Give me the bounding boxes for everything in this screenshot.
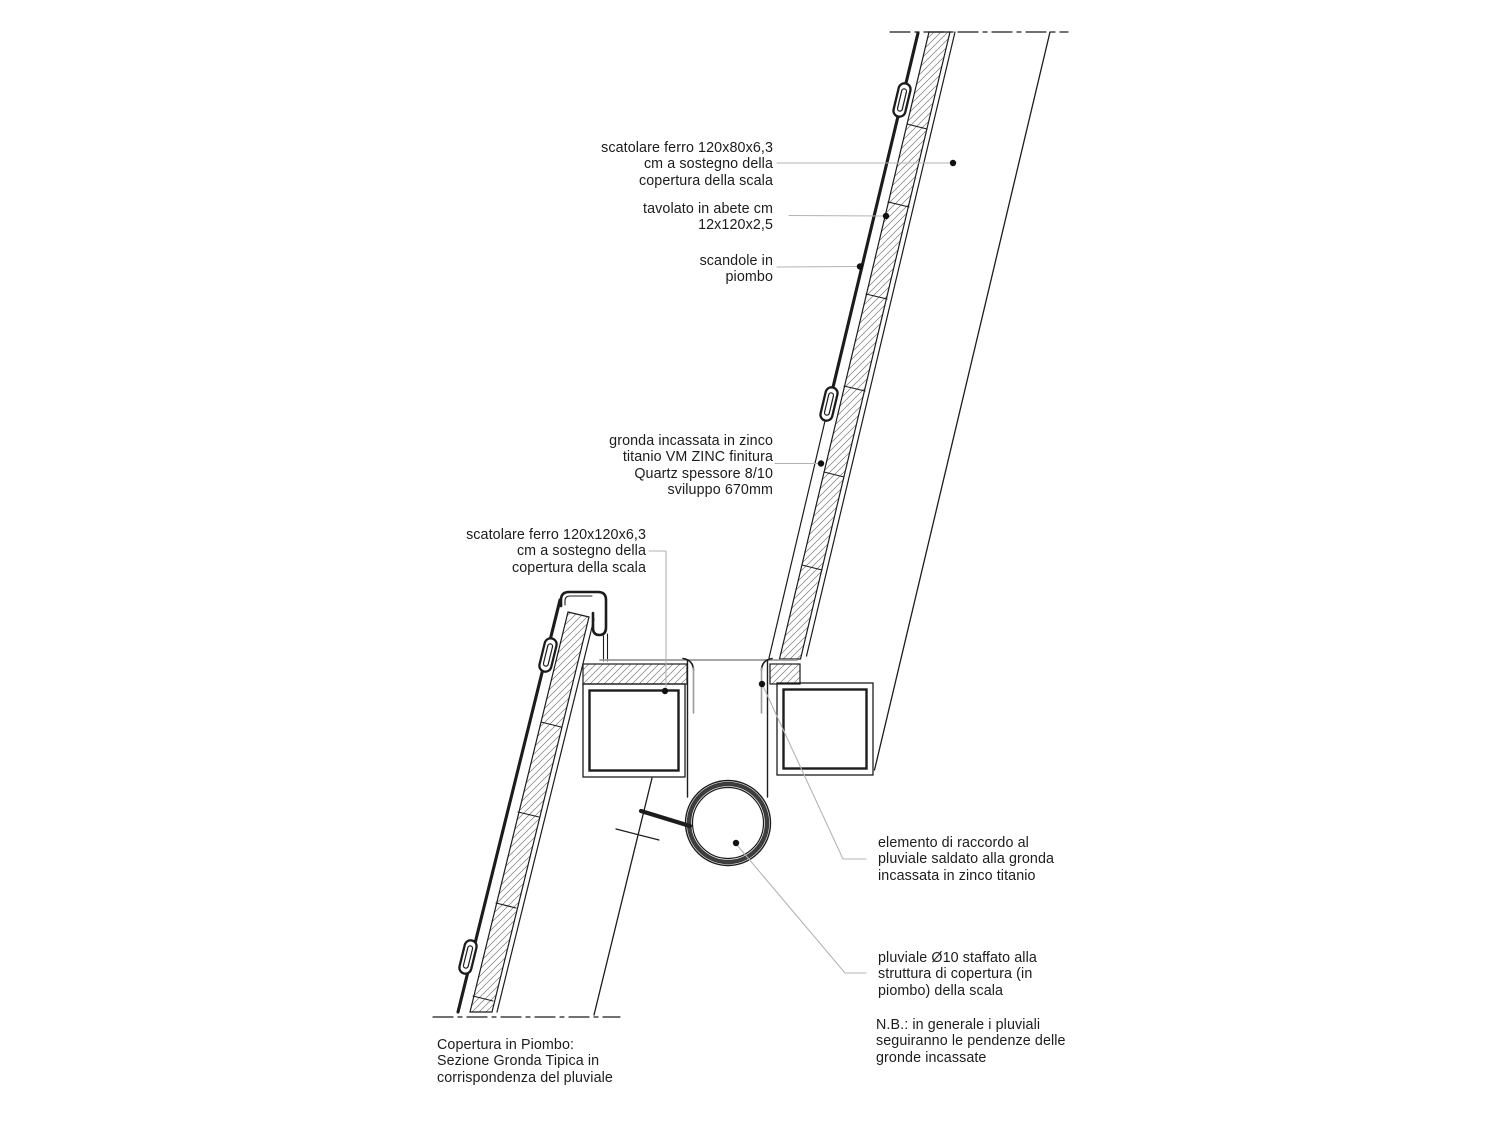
label-gutter: gronda incassata in zinco titanio VM ZIN…: [609, 433, 773, 499]
leader-downpipe: [737, 845, 866, 973]
label-line: scatolare ferro 120x120x6,3: [466, 527, 646, 543]
leader-plank: [789, 216, 883, 217]
label-line: titanio VM ZINC finitura: [609, 449, 773, 465]
seam-clip-icon: [892, 82, 912, 118]
label-line: pluviale saldato alla gronda: [878, 851, 1054, 867]
label-plank: tavolato in abete cm 12x120x2,5: [643, 201, 773, 234]
bracket-line: [641, 811, 690, 826]
drawing-sheet: scatolare ferro 120x80x6,3 cm a sostegno…: [0, 0, 1500, 1125]
title-line: Copertura in Piombo:: [437, 1037, 613, 1053]
steel-box-left: [583, 684, 685, 777]
label-connector: elemento di raccordo al pluviale saldato…: [878, 835, 1054, 884]
label-line: scatolare ferro 120x80x6,3: [601, 140, 773, 156]
label-line: tavolato in abete cm: [643, 201, 773, 217]
downpipe-connector: [683, 659, 772, 714]
leader-connector: [763, 686, 866, 859]
label-line: copertura della scala: [466, 560, 646, 576]
label-line: cm a sostegno della: [466, 543, 646, 559]
ref-dot: [883, 213, 889, 219]
note-line: N.B.: in generale i pluviali: [876, 1017, 1066, 1033]
ref-dot: [662, 688, 668, 694]
roof-structure-line: [875, 32, 1051, 770]
ref-dot: [950, 160, 956, 166]
seam-clip-icon: [458, 939, 478, 975]
label-box-steel-upper: scatolare ferro 120x80x6,3 cm a sostegno…: [601, 140, 773, 189]
label-line: scandole in: [700, 253, 773, 269]
gutter-assembly: [583, 659, 873, 866]
label-shingles: scandole in piombo: [700, 253, 773, 286]
label-line: sviluppo 670mm: [609, 482, 773, 498]
ref-dot: [759, 681, 765, 687]
right-roof-slope: [769, 32, 1050, 770]
note-block: N.B.: in generale i pluviali seguiranno …: [876, 1017, 1066, 1066]
drawing-title: Copertura in Piombo: Sezione Gronda Tipi…: [437, 1037, 613, 1086]
title-line: corrispondenza del pluviale: [437, 1070, 613, 1086]
note-line: seguiranno le pendenze delle: [876, 1033, 1066, 1049]
title-line: Sezione Gronda Tipica in: [437, 1053, 613, 1069]
ref-dot: [818, 460, 824, 466]
ref-dot: [857, 263, 863, 269]
gutter-bearer-right: [770, 664, 800, 684]
board-underside-line: [497, 619, 594, 1012]
label-box-steel-lower: scatolare ferro 120x120x6,3 cm a sostegn…: [466, 527, 646, 576]
drip-edge-inner-line: [565, 596, 592, 605]
label-line: piombo: [700, 269, 773, 285]
leader-shingles: [777, 267, 857, 268]
steel-box-right: [777, 683, 873, 775]
ref-dot: [733, 840, 739, 846]
label-line: elemento di raccordo al: [878, 835, 1054, 851]
left-roof-slope: [458, 592, 652, 1015]
label-line: piombo) della scala: [878, 983, 1037, 999]
label-downpipe: pluviale Ø10 staffato alla struttura di …: [878, 950, 1037, 999]
label-line: Quartz spessore 8/10: [609, 466, 773, 482]
gutter-bearer-left: [583, 664, 687, 684]
label-line: incassata in zinco titanio: [878, 868, 1054, 884]
label-line: struttura di copertura (in: [878, 966, 1037, 982]
label-line: pluviale Ø10 staffato alla: [878, 950, 1037, 966]
downpipe-circle: [686, 781, 771, 866]
seam-clip-icon: [819, 386, 839, 422]
label-line: cm a sostegno della: [601, 156, 773, 172]
plank-board: [780, 32, 951, 659]
plank-board: [470, 612, 589, 1012]
note-line: gronde incassate: [876, 1050, 1066, 1066]
board-underside-line: [807, 32, 956, 656]
label-line: copertura della scala: [601, 173, 773, 189]
label-line: gronda incassata in zinco: [609, 433, 773, 449]
label-line: 12x120x2,5: [643, 217, 773, 233]
